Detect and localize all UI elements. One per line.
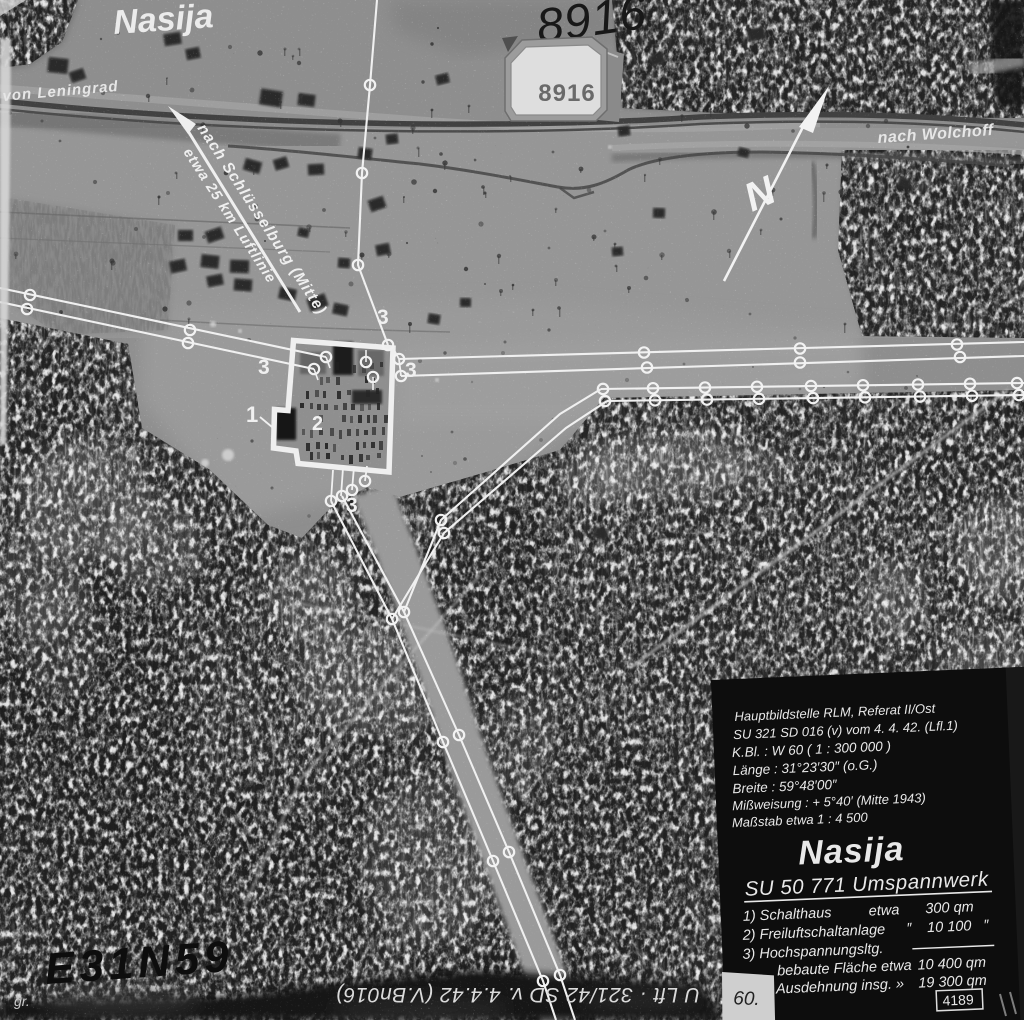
svg-text:Nasija: Nasija bbox=[112, 0, 215, 42]
svg-text:8916: 8916 bbox=[538, 80, 595, 107]
svg-text:Nasija: Nasija bbox=[797, 830, 905, 872]
svg-text:10 400 qm: 10 400 qm bbox=[917, 955, 986, 974]
svg-text:10 100: 10 100 bbox=[927, 918, 972, 936]
svg-text:gr.: gr. bbox=[14, 993, 30, 1009]
svg-text:etwa: etwa bbox=[868, 902, 899, 919]
svg-text:300 qm: 300 qm bbox=[925, 899, 974, 917]
svg-text:1: 1 bbox=[246, 402, 258, 427]
svg-text:U Lft · 321/42 SD v. 4.4.42 (V: U Lft · 321/42 SD v. 4.4.42 (V.Bn016) bbox=[336, 983, 700, 1006]
svg-text:60.: 60. bbox=[733, 988, 760, 1010]
svg-text:3: 3 bbox=[258, 356, 270, 379]
svg-text:3: 3 bbox=[377, 306, 389, 329]
svg-text:2: 2 bbox=[312, 413, 323, 435]
svg-text:3: 3 bbox=[405, 359, 417, 382]
svg-text:4189: 4189 bbox=[942, 991, 974, 1008]
svg-text:3: 3 bbox=[346, 494, 358, 517]
